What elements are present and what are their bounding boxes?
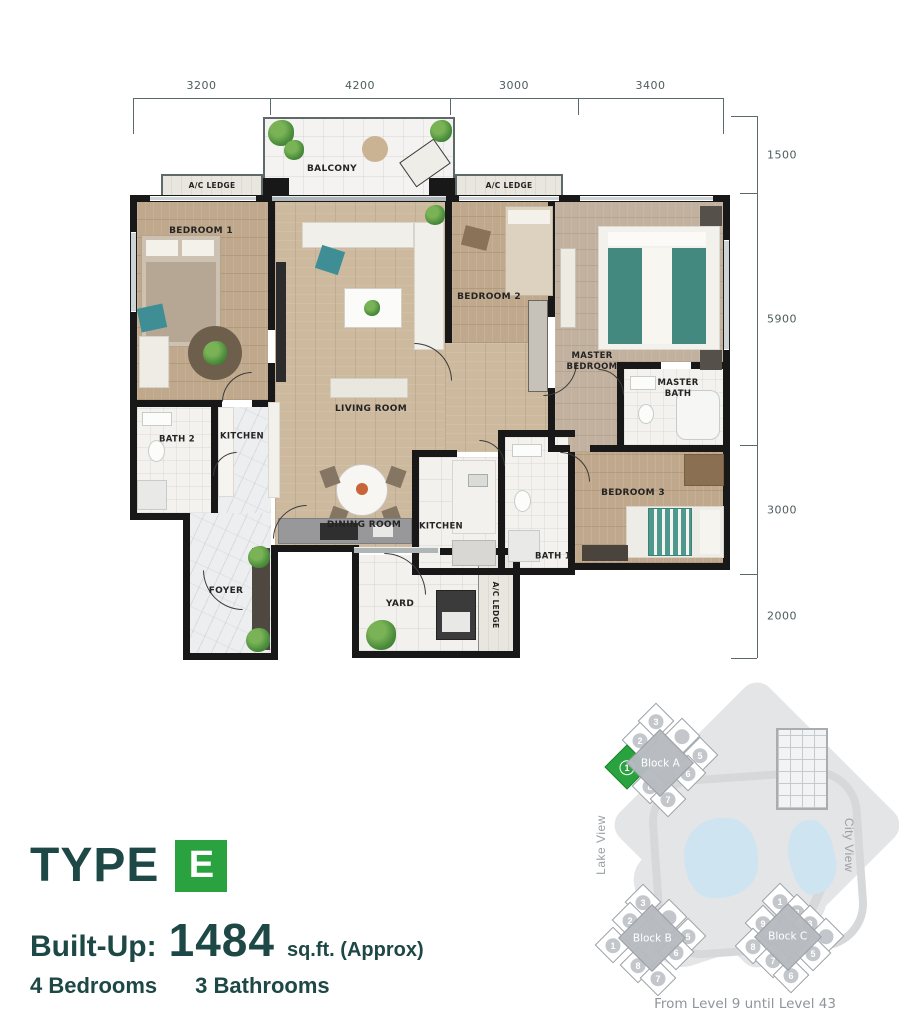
site-plan: Lake View City View From Level 9 until L…: [0, 0, 899, 1024]
site-block-label: Block B: [633, 932, 672, 944]
site-unit-number: 3: [649, 714, 664, 729]
site-block-label: Block A: [641, 757, 680, 769]
lake-view-label: Lake View: [594, 815, 608, 875]
site-building: [776, 728, 828, 810]
site-unit-number: 1: [606, 938, 621, 953]
city-view-label: City View: [842, 818, 856, 872]
site-pool: [684, 818, 758, 898]
site-unit-number: 5: [693, 748, 708, 763]
site-unit-number: [675, 729, 690, 744]
site-block-label: Block C: [768, 931, 807, 943]
site-unit-number: 7: [651, 971, 666, 986]
site-unit-number: 6: [784, 968, 799, 983]
site-level-note: From Level 9 until Level 43: [654, 996, 836, 1012]
